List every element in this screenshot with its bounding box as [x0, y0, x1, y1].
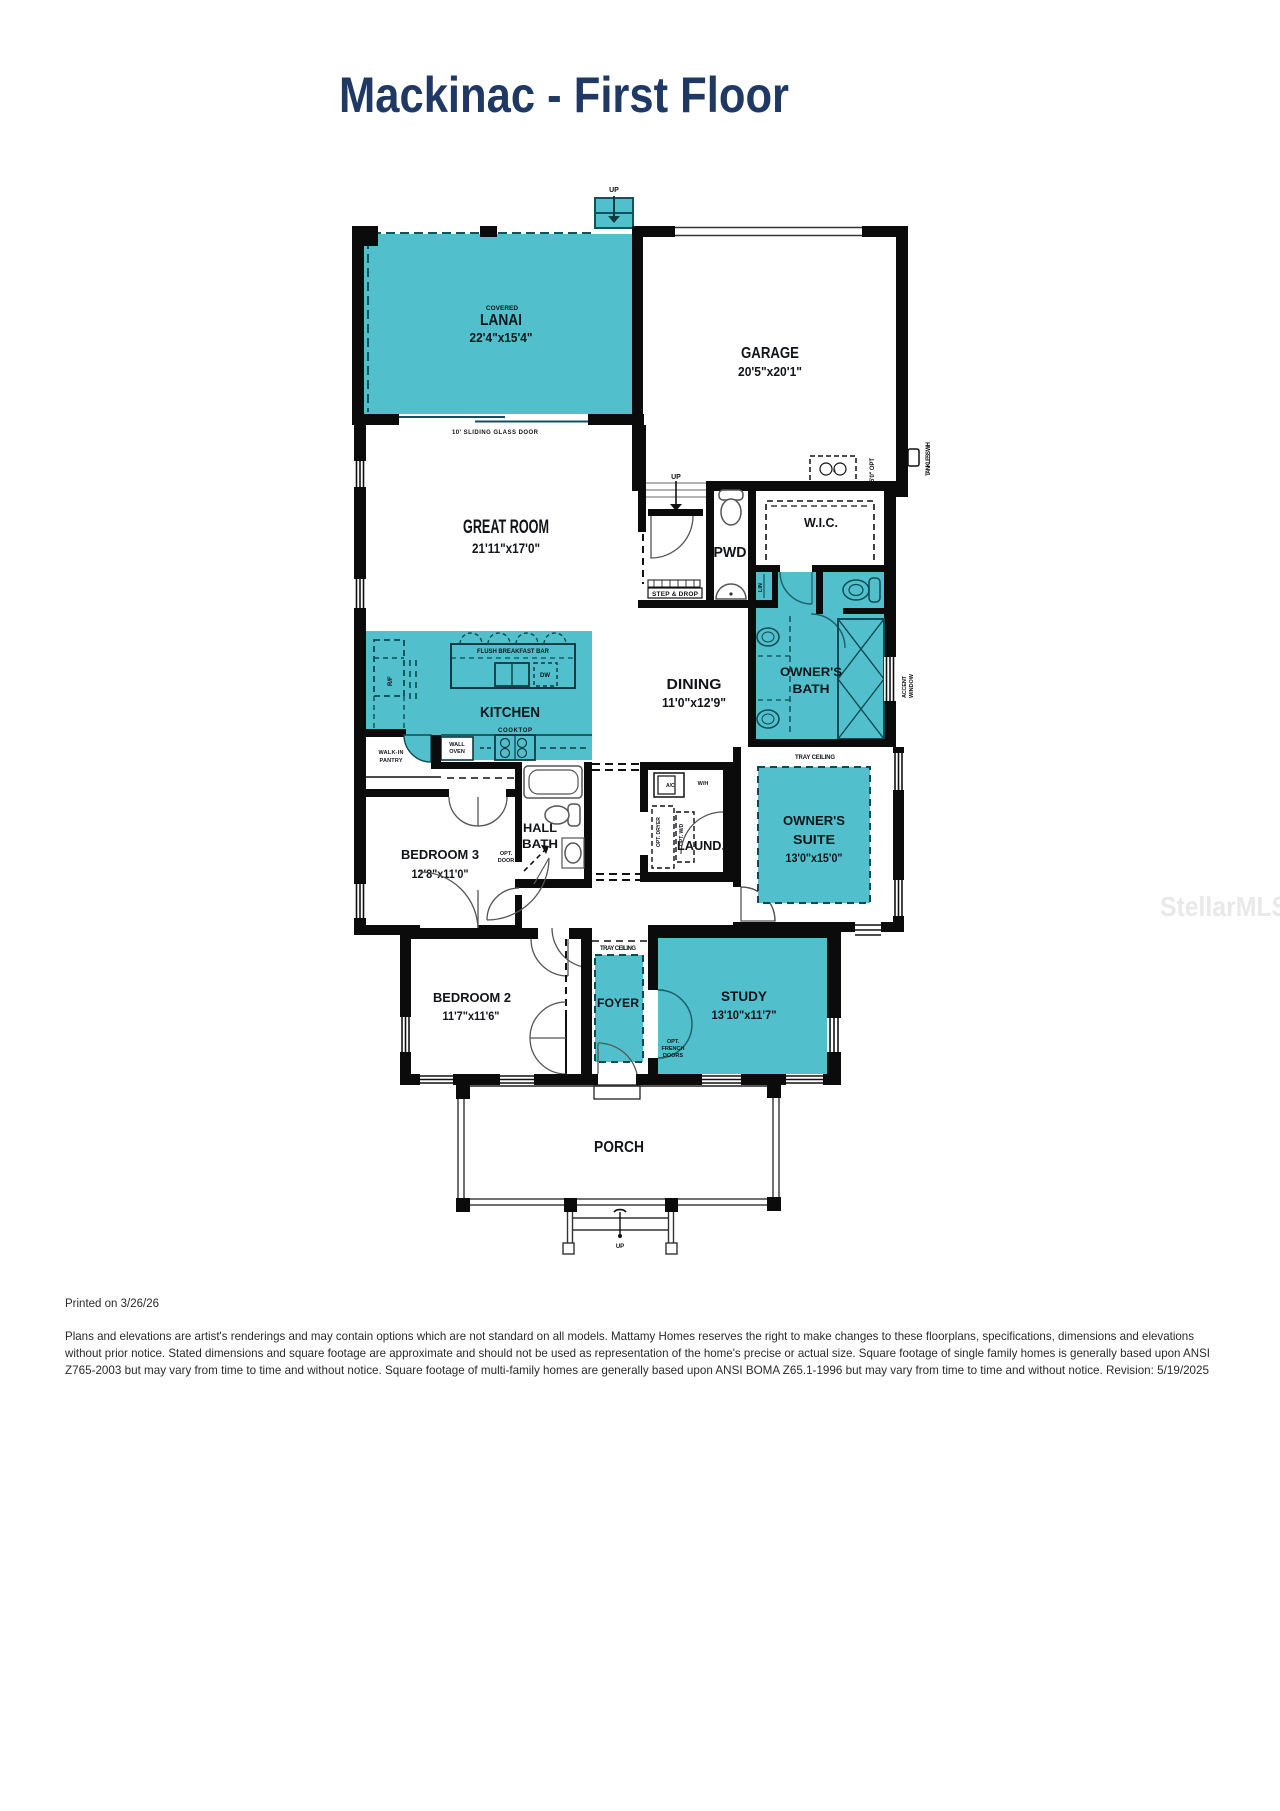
svg-text:without prior notice. Stated: without prior notice. Stated dimensions …: [64, 1346, 1210, 1360]
svg-text:OWNER'S: OWNER'S: [783, 814, 845, 828]
svg-text:FLUSH BREAKFAST BAR: FLUSH BREAKFAST BAR: [477, 649, 550, 655]
svg-text:GREAT ROOM: GREAT ROOM: [463, 517, 549, 538]
svg-text:TRAY CEILING: TRAY CEILING: [795, 755, 835, 761]
svg-text:13'10"x11'7": 13'10"x11'7": [712, 1010, 777, 1022]
svg-text:KITCHEN: KITCHEN: [480, 704, 540, 721]
svg-text:COOKTOP: COOKTOP: [498, 728, 532, 734]
svg-text:Mackinac - First Floor: Mackinac - First Floor: [339, 67, 789, 123]
svg-text:11'0"x12'9": 11'0"x12'9": [662, 696, 726, 710]
svg-text:DOOR: DOOR: [498, 858, 515, 864]
svg-text:GARAGE: GARAGE: [741, 345, 799, 362]
svg-text:22'4"x15'4": 22'4"x15'4": [470, 331, 533, 345]
svg-text:Plans and elevations are artis: Plans and elevations are artist's render…: [65, 1329, 1194, 1343]
svg-text:Printed on 3/26/26: Printed on 3/26/26: [65, 1298, 159, 1310]
svg-text:11'7"x11'6": 11'7"x11'6": [443, 1011, 500, 1023]
svg-text:LAUND.: LAUND.: [677, 839, 725, 853]
svg-text:PWD: PWD: [714, 544, 747, 561]
svg-text:LANAI: LANAI: [480, 312, 522, 329]
svg-text:21'11"x17'0": 21'11"x17'0": [472, 541, 540, 556]
svg-text:W.I.C.: W.I.C.: [804, 516, 838, 530]
svg-text:R/F: R/F: [388, 676, 394, 686]
svg-text:s: s: [833, 468, 836, 474]
svg-text:10' SLIDING GLASS DOOR: 10' SLIDING GLASS DOOR: [452, 430, 539, 436]
svg-text:Z765-2003 but may vary from ti: Z765-2003 but may vary from time to time…: [65, 1363, 1209, 1377]
svg-text:LIN: LIN: [758, 583, 764, 592]
svg-text:BATH: BATH: [793, 684, 830, 696]
svg-text:HALL: HALL: [523, 823, 557, 835]
svg-text:UP: UP: [616, 1244, 624, 1250]
svg-text:PANTRY: PANTRY: [380, 758, 403, 764]
svg-text:WALK-IN: WALK-IN: [379, 750, 404, 756]
svg-text:WALL: WALL: [449, 742, 465, 748]
svg-text:SUITE: SUITE: [793, 833, 835, 847]
svg-text:PORCH: PORCH: [594, 1139, 644, 1156]
svg-text:13'0"x15'0": 13'0"x15'0": [786, 853, 843, 865]
svg-text:UP: UP: [671, 474, 681, 481]
svg-text:OWNER'S: OWNER'S: [780, 667, 842, 679]
svg-text:BEDROOM 2: BEDROOM 2: [433, 991, 511, 1005]
svg-text:BEDROOM 3: BEDROOM 3: [401, 848, 479, 862]
svg-text:DOORS: DOORS: [663, 1053, 684, 1059]
svg-text:StellarMLS: StellarMLS: [1160, 891, 1280, 922]
svg-text:FRENCH: FRENCH: [662, 1046, 685, 1052]
svg-text:5'0" OPT: 5'0" OPT: [870, 458, 876, 482]
svg-text:OPT. DRYER: OPT. DRYER: [656, 817, 662, 847]
svg-text:STEP & DROP: STEP & DROP: [652, 591, 699, 598]
svg-text:FOYER: FOYER: [597, 996, 639, 1010]
svg-text:TRAY CEILING: TRAY CEILING: [600, 946, 636, 952]
svg-text:DW: DW: [540, 673, 550, 679]
svg-text:DINING: DINING: [667, 676, 722, 693]
svg-text:A/C: A/C: [666, 783, 675, 789]
svg-text:OPT.: OPT.: [500, 851, 513, 857]
svg-text:COVERED: COVERED: [486, 305, 518, 312]
svg-text:ACCENT: ACCENT: [902, 675, 908, 698]
svg-text:BATH: BATH: [522, 839, 558, 851]
svg-text:WINDOW: WINDOW: [909, 673, 915, 698]
svg-text:UP: UP: [609, 187, 619, 194]
svg-text:W/H: W/H: [698, 781, 709, 787]
svg-text:OVEN: OVEN: [449, 749, 465, 755]
svg-text:STUDY: STUDY: [721, 989, 767, 1004]
svg-text:TANKLESS WH: TANKLESS WH: [926, 442, 932, 476]
svg-text:OPT.: OPT.: [667, 1039, 680, 1045]
svg-text:20'5"x20'1": 20'5"x20'1": [738, 365, 802, 379]
